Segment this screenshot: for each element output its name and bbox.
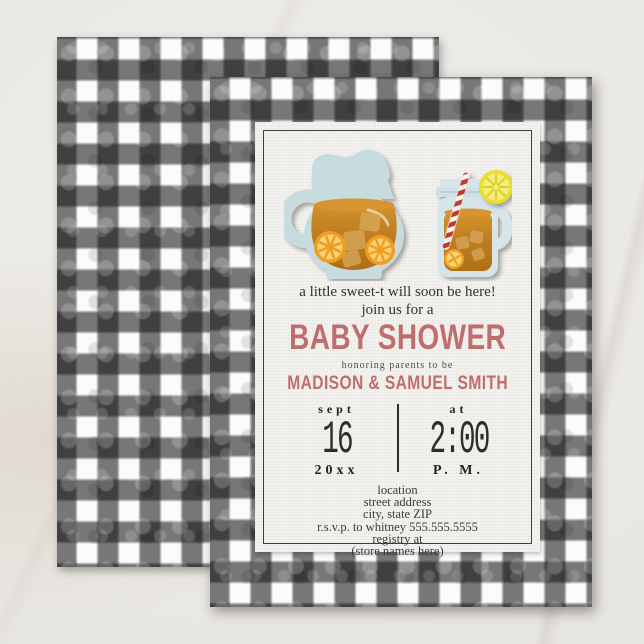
date-column: sept 16 20xx <box>281 402 393 479</box>
date-time-section: sept 16 20xx at 2:00 P. M. <box>281 402 515 479</box>
invitation-content: a little sweet-t will soon be here! join… <box>264 131 531 543</box>
time-column: at 2:00 P. M. <box>403 402 515 479</box>
day-number: 16 <box>303 419 370 461</box>
marble-table-surface: a little sweet-t will soon be here! join… <box>0 0 644 644</box>
lemon-slice-icon <box>479 170 512 204</box>
honoring-subtitle: honoring parents to be <box>342 360 454 371</box>
event-details: location street address city, state ZIP … <box>317 484 478 558</box>
divider-line <box>397 404 399 472</box>
intro-line: a little sweet-t will soon be here! <box>299 283 496 301</box>
store-names-line: (store names here) <box>317 545 478 557</box>
city-line: city, state ZIP <box>317 508 478 520</box>
parent-names: MADISON & SAMUEL SMITH <box>287 374 508 395</box>
sweet-tea-pitcher-icon <box>285 150 404 279</box>
join-line: join us for a <box>361 301 433 319</box>
invitation-front-card: a little sweet-t will soon be here! join… <box>210 77 592 607</box>
event-title: BABY SHOWER <box>289 320 506 356</box>
time-value: 2:00 <box>425 419 492 461</box>
sweet-tea-illustration <box>284 147 512 281</box>
invitation-panel: a little sweet-t will soon be here! join… <box>255 122 540 552</box>
